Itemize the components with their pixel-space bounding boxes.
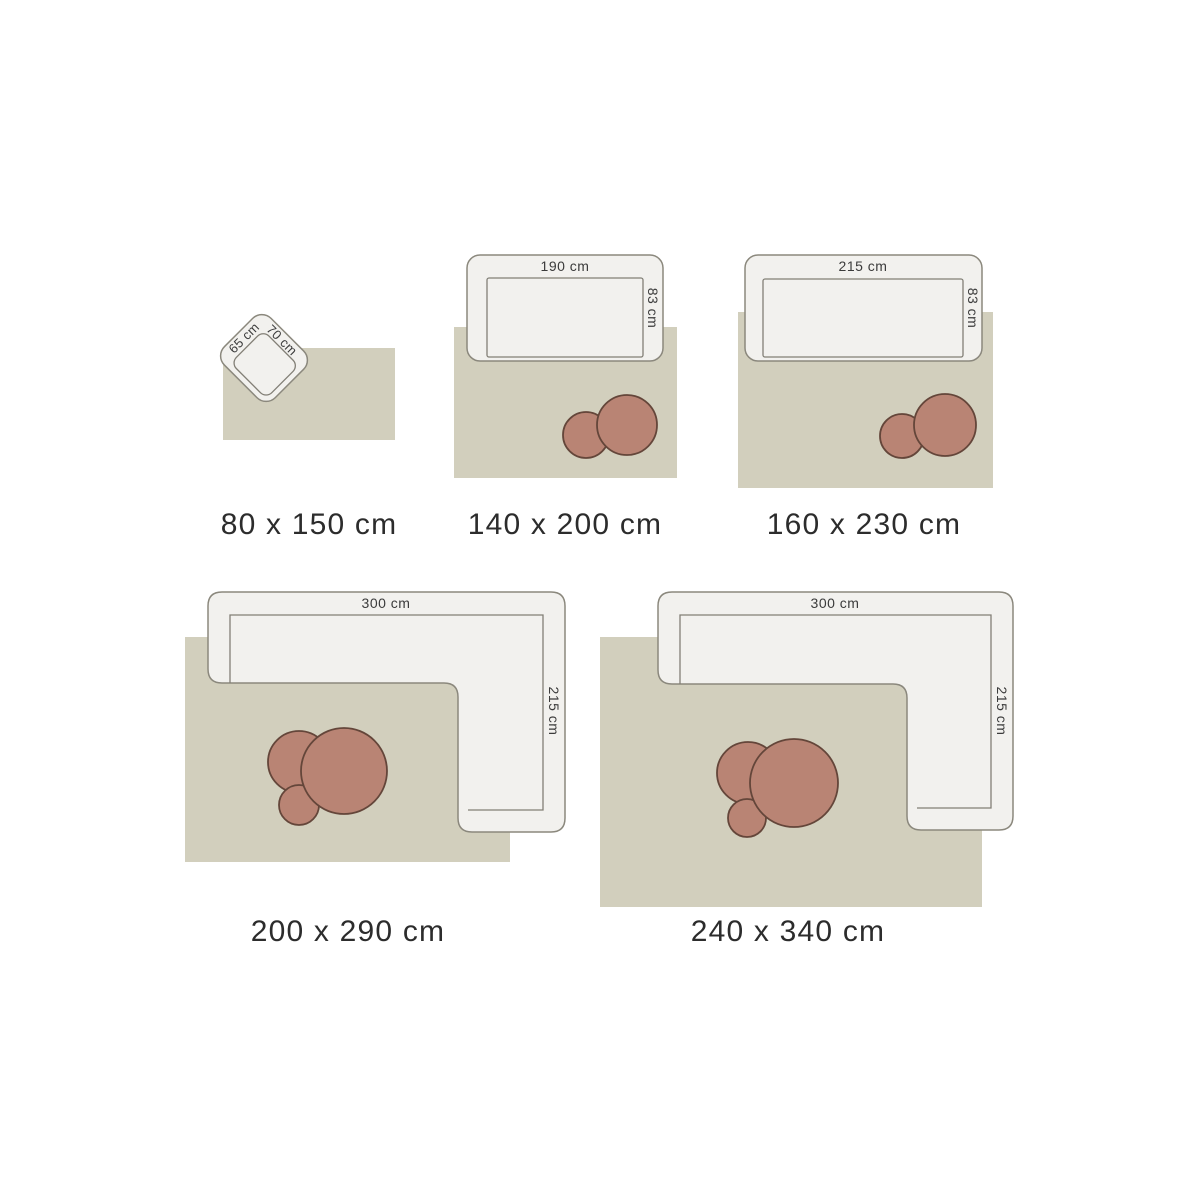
diagram-200x290: 300 cm 215 cm 200 x 290 cm xyxy=(185,592,565,948)
sofa-width-label: 300 cm xyxy=(811,595,860,611)
size-label: 240 x 340 cm xyxy=(691,915,886,948)
coffee-table-large xyxy=(750,739,838,827)
diagram-160x230: 215 cm 83 cm 160 x 230 cm xyxy=(738,255,993,541)
sofa-width-label: 190 cm xyxy=(541,258,590,274)
rug-size-guide: 65 cm 70 cm 80 x 150 cm 190 cm 83 cm 140… xyxy=(0,0,1200,1200)
sofa-depth-label: 83 cm xyxy=(965,288,981,329)
size-label: 160 x 230 cm xyxy=(767,508,962,541)
diagram-140x200: 190 cm 83 cm 140 x 200 cm xyxy=(454,255,677,541)
sofa-depth-label: 215 cm xyxy=(994,687,1010,736)
sofa: 215 cm 83 cm xyxy=(745,255,982,361)
size-label: 200 x 290 cm xyxy=(251,915,446,948)
size-label: 80 x 150 cm xyxy=(221,508,398,541)
diagram-240x340: 300 cm 215 cm 240 x 340 cm xyxy=(600,592,1013,948)
sofa-depth-label: 215 cm xyxy=(546,687,562,736)
diagram-80x150: 65 cm 70 cm 80 x 150 cm xyxy=(215,309,397,541)
size-guide-illustration: 65 cm 70 cm 80 x 150 cm 190 cm 83 cm 140… xyxy=(0,0,1200,1200)
coffee-table-large xyxy=(301,728,387,814)
coffee-table-large xyxy=(597,395,657,455)
size-label: 140 x 200 cm xyxy=(468,508,663,541)
sofa-width-label: 300 cm xyxy=(362,595,411,611)
sofa-width-label: 215 cm xyxy=(839,258,888,274)
coffee-table-large xyxy=(914,394,976,456)
sofa: 190 cm 83 cm xyxy=(467,255,663,361)
sofa-depth-label: 83 cm xyxy=(645,288,661,329)
